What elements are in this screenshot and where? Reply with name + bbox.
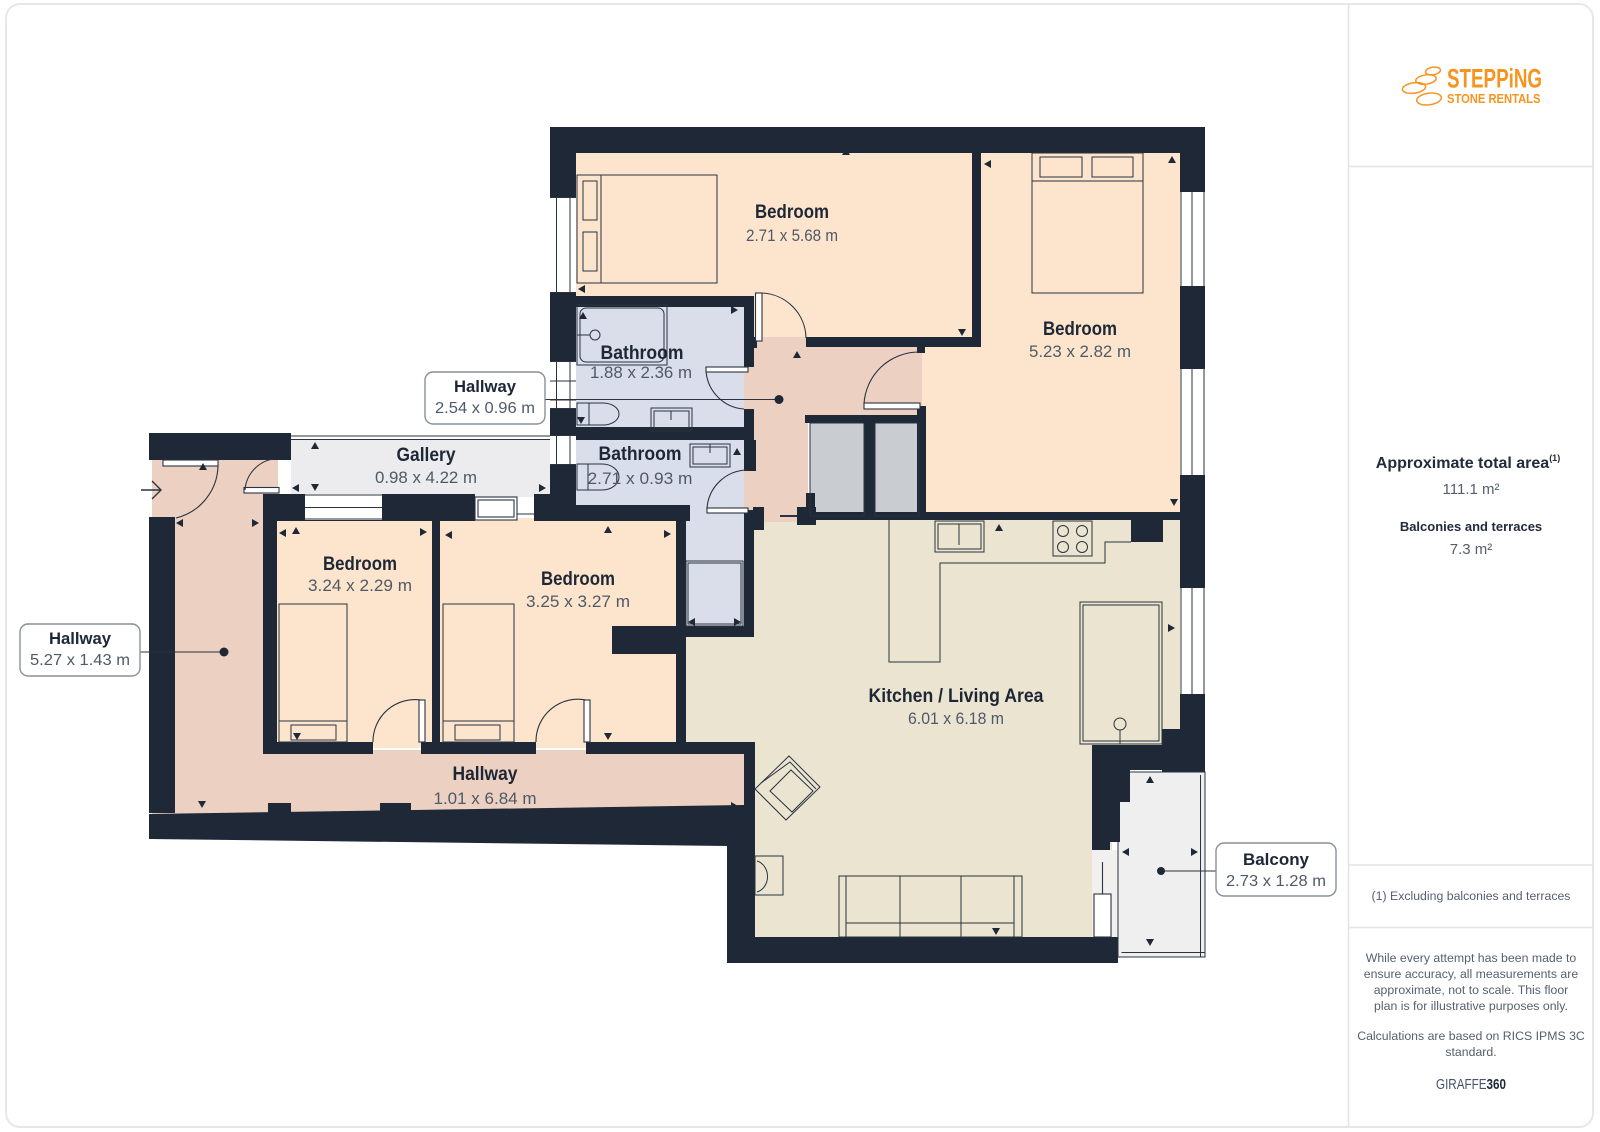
svg-text:While every attempt has been m: While every attempt has been made to	[1366, 951, 1577, 965]
svg-text:2.73 x 1.28 m: 2.73 x 1.28 m	[1226, 873, 1326, 890]
svg-text:Calculations are based on RICS: Calculations are based on RICS IPMS 3C	[1357, 1029, 1585, 1043]
svg-text:111.1 m²: 111.1 m²	[1443, 481, 1500, 498]
svg-text:2.54 x 0.96 m: 2.54 x 0.96 m	[435, 400, 535, 417]
svg-text:STEPPiNG: STEPPiNG	[1447, 64, 1542, 94]
svg-text:7.3 m²: 7.3 m²	[1450, 541, 1493, 558]
svg-text:Balconies and terraces: Balconies and terraces	[1400, 519, 1542, 534]
svg-text:5.27 x 1.43 m: 5.27 x 1.43 m	[30, 652, 130, 669]
svg-text:GIRAFFE360: GIRAFFE360	[1436, 1076, 1506, 1093]
svg-text:Hallway: Hallway	[454, 377, 517, 396]
svg-text:3.24 x 2.29 m: 3.24 x 2.29 m	[308, 577, 412, 595]
svg-text:Balcony: Balcony	[1243, 850, 1310, 869]
svg-text:(1) Excluding balconies and te: (1) Excluding balconies and terraces	[1372, 889, 1571, 903]
svg-text:Approximate total area(1): Approximate total area(1)	[1376, 453, 1560, 472]
svg-text:2.71 x 5.68 m: 2.71 x 5.68 m	[746, 227, 838, 245]
svg-text:1.88 x 2.36 m: 1.88 x 2.36 m	[590, 364, 692, 382]
svg-text:Bedroom: Bedroom	[323, 554, 397, 575]
svg-text:ensure accuracy, all measureme: ensure accuracy, all measurements are	[1364, 967, 1579, 981]
svg-text:Bathroom: Bathroom	[599, 444, 682, 465]
svg-text:Bathroom: Bathroom	[601, 343, 684, 364]
svg-text:Bedroom: Bedroom	[755, 202, 829, 223]
svg-text:standard.: standard.	[1445, 1045, 1496, 1059]
svg-text:Hallway: Hallway	[453, 764, 518, 785]
svg-text:2.71 x 0.93 m: 2.71 x 0.93 m	[588, 470, 693, 488]
svg-text:5.23 x 2.82 m: 5.23 x 2.82 m	[1029, 343, 1131, 361]
svg-text:approximate, not to scale. Thi: approximate, not to scale. This floor	[1374, 983, 1569, 997]
svg-text:1.01 x 6.84 m: 1.01 x 6.84 m	[434, 790, 537, 808]
svg-text:STONE RENTALS: STONE RENTALS	[1447, 92, 1541, 106]
svg-text:Kitchen / Living Area: Kitchen / Living Area	[869, 686, 1044, 707]
svg-text:Hallway: Hallway	[49, 629, 112, 648]
svg-text:Bedroom: Bedroom	[1043, 319, 1117, 340]
svg-text:0.98 x 4.22 m: 0.98 x 4.22 m	[375, 469, 477, 487]
svg-text:Bedroom: Bedroom	[541, 569, 615, 590]
svg-text:3.25 x 3.27 m: 3.25 x 3.27 m	[526, 593, 630, 611]
svg-text:Gallery: Gallery	[397, 445, 456, 466]
svg-text:plan is for illustrative purpo: plan is for illustrative purposes only.	[1374, 999, 1568, 1013]
svg-text:6.01 x 6.18 m: 6.01 x 6.18 m	[908, 710, 1004, 728]
